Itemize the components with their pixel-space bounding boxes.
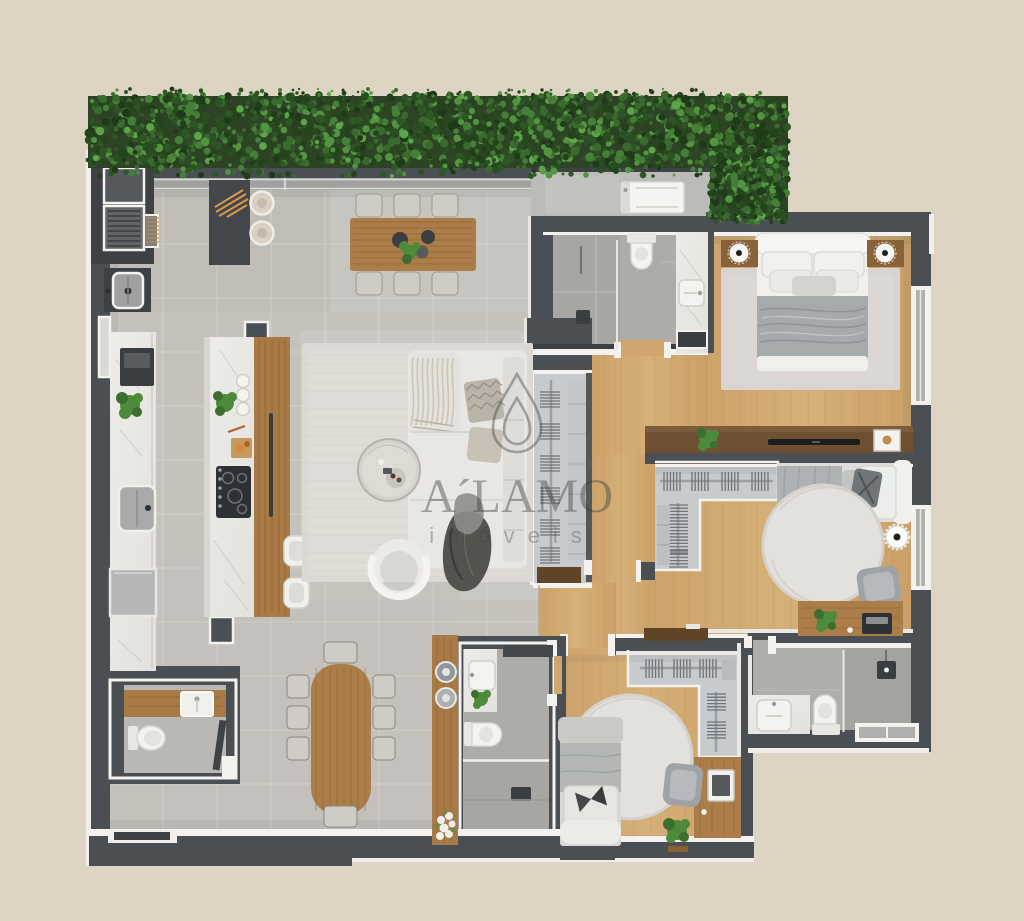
- svg-text:imóveis: imóveis: [429, 523, 595, 548]
- svg-text:A´LAMO: A´LAMO: [421, 470, 613, 523]
